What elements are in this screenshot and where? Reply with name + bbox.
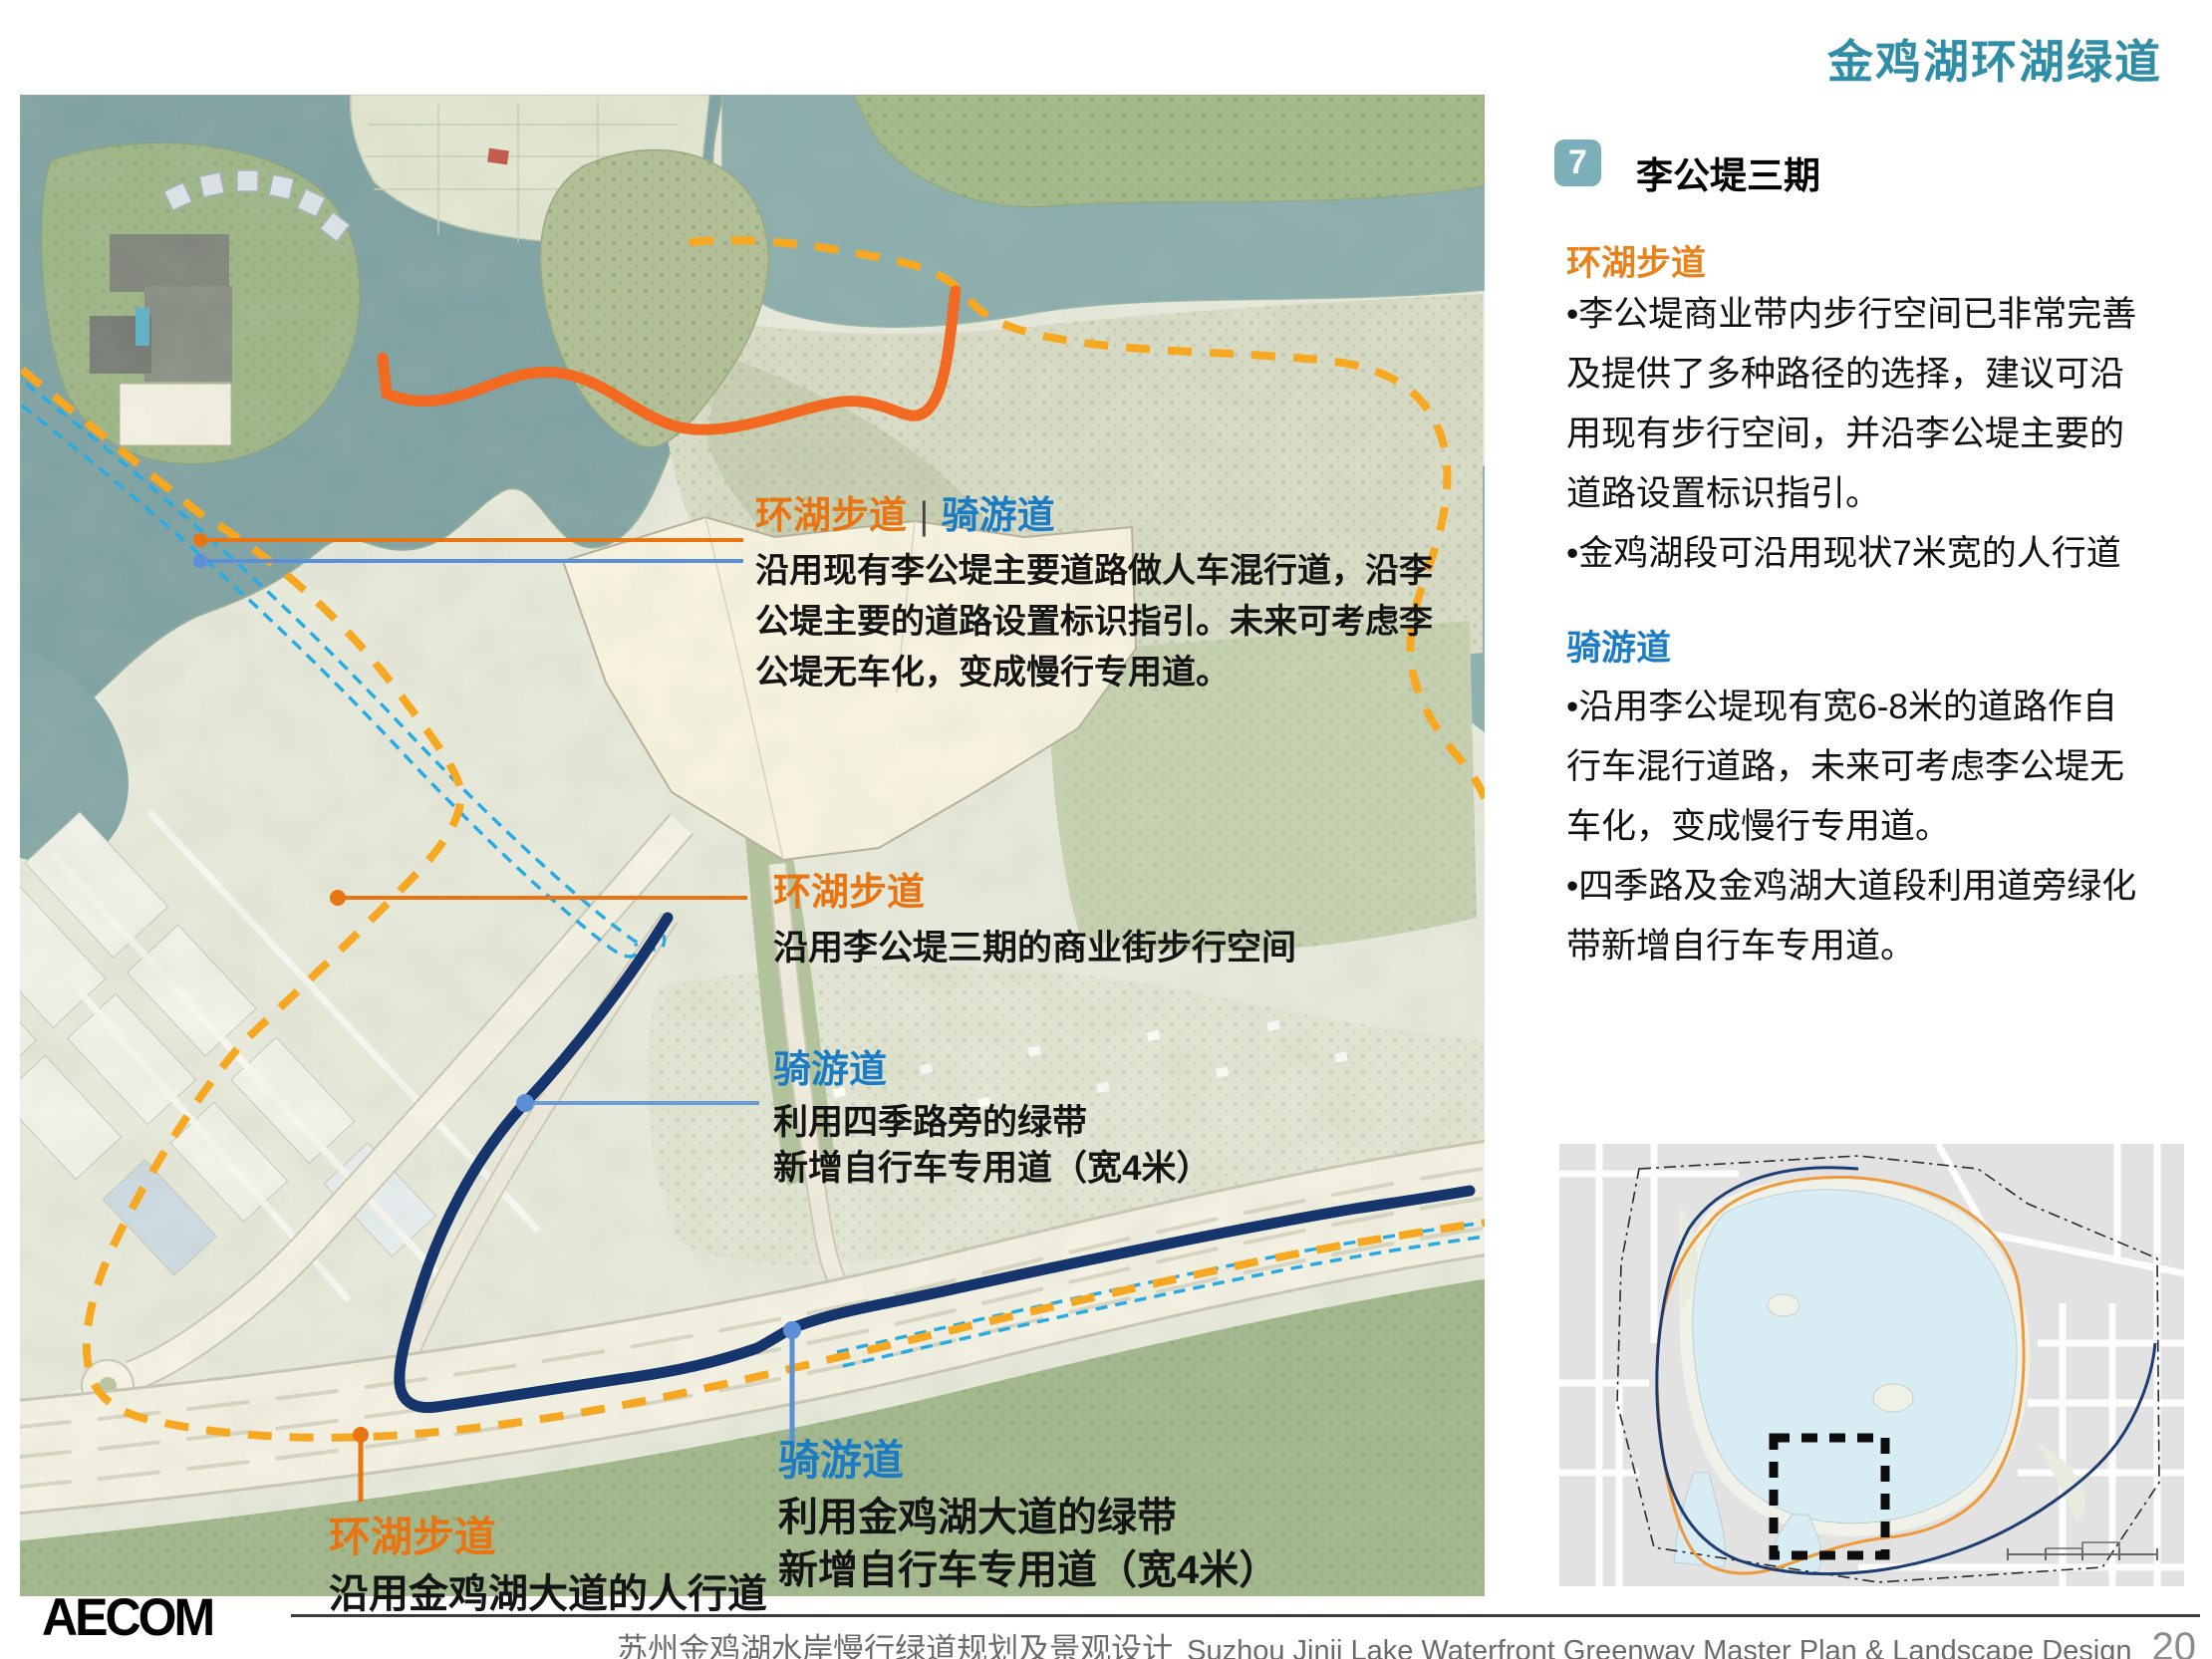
section-number-badge: 7	[1554, 139, 1601, 186]
annotation-walkway-label: 环湖步道	[773, 873, 925, 915]
satellite-map	[20, 95, 1485, 1596]
annotation-cycleway-label: 骑游道	[942, 496, 1055, 538]
page-number: 20	[2152, 1625, 2197, 1659]
cycleway-section-body: •沿用李公堤现有宽6-8米的道路作自 行车混行道路，未来可考虑李公堤无 车化，变…	[1566, 678, 2204, 976]
slide: 金鸡湖环湖绿道	[0, 0, 2212, 1659]
annotation-cycleway-label: 骑游道	[773, 1050, 887, 1092]
cycleway-section-title: 骑游道	[1566, 620, 1671, 671]
page-title: 金鸡湖环湖绿道	[1827, 26, 2162, 92]
footer-title-cn: 苏州金鸡湖水岸慢行绿道规划及景观设计	[617, 1624, 1173, 1659]
locator-inset-map	[1559, 1144, 2184, 1586]
aecom-logo: AECOM	[42, 1587, 212, 1648]
annotation-walkway-label: 环湖步道	[755, 496, 907, 538]
texture-overlay	[20, 95, 1485, 1596]
annotation-body: 利用四季路旁的绿带 新增自行车专用道（宽4米）	[773, 1100, 1211, 1192]
section-heading: 李公堤三期	[1636, 145, 1820, 199]
annotation-divider: |	[921, 496, 927, 538]
annotation-body: 沿用现有李公堤主要道路做人车混行道，沿李 公堤主要的道路设置标识指引。未来可考虑…	[755, 546, 1433, 698]
footer-title-en: Suzhou Jinji Lake Waterfront Greenway Ma…	[1187, 1635, 2131, 1659]
map-annotation-ligongdi: 环湖步道 | 骑游道 沿用现有李公堤主要道路做人车混行道，沿李 公堤主要的道路设…	[755, 496, 1433, 698]
map-annotation-avenue-cycleway: 骑游道 利用金鸡湖大道的绿带 新增自行车专用道（宽4米）	[778, 1438, 1278, 1597]
footer: 苏州金鸡湖水岸慢行绿道规划及景观设计 Suzhou Jinji Lake Wat…	[617, 1624, 2196, 1659]
annotation-body: 利用金鸡湖大道的绿带 新增自行车专用道（宽4米）	[778, 1492, 1278, 1597]
annotation-cycleway-label: 骑游道	[778, 1438, 904, 1484]
map-annotation-commercial-street: 环湖步道 沿用李公堤三期的商业街步行空间	[773, 873, 1296, 974]
annotation-walkway-label: 环湖步道	[329, 1515, 496, 1560]
footer-divider	[291, 1614, 2200, 1617]
map-annotation-avenue-walkway: 环湖步道 沿用金鸡湖大道的人行道	[329, 1515, 767, 1621]
map-annotation-siji-road: 骑游道 利用四季路旁的绿带 新增自行车专用道（宽4米）	[773, 1050, 1211, 1192]
annotation-body: 沿用李公堤三期的商业街步行空间	[773, 923, 1296, 975]
walkway-section-title: 环湖步道	[1566, 235, 1706, 286]
walkway-section-body: •李公堤商业带内步行空间已非常完善 及提供了多种路径的选择，建议可沿 用现有步行…	[1566, 285, 2204, 584]
